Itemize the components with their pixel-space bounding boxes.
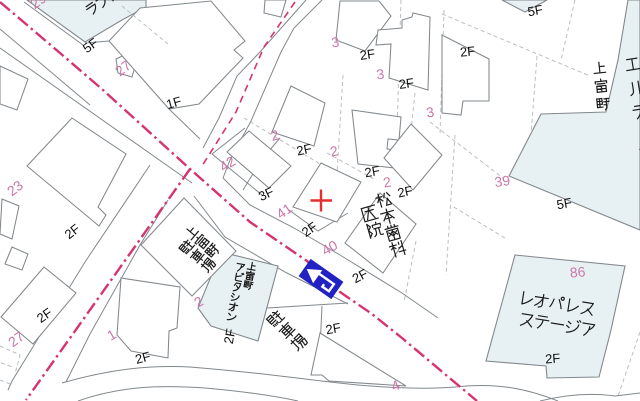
svg-text:2F: 2F <box>221 327 238 345</box>
svg-text:2F: 2F <box>324 320 342 337</box>
svg-text:2F: 2F <box>398 75 415 92</box>
svg-text:39: 39 <box>493 172 511 190</box>
svg-text:2F: 2F <box>295 141 313 159</box>
svg-text:86: 86 <box>569 263 586 280</box>
svg-text:5F: 5F <box>526 2 544 19</box>
svg-text:2F: 2F <box>363 163 381 180</box>
svg-text:2F: 2F <box>396 183 414 201</box>
svg-text:5F: 5F <box>555 195 573 212</box>
svg-text:2F: 2F <box>359 46 376 63</box>
svg-text:2F: 2F <box>545 350 561 366</box>
svg-text:2F: 2F <box>459 43 476 60</box>
